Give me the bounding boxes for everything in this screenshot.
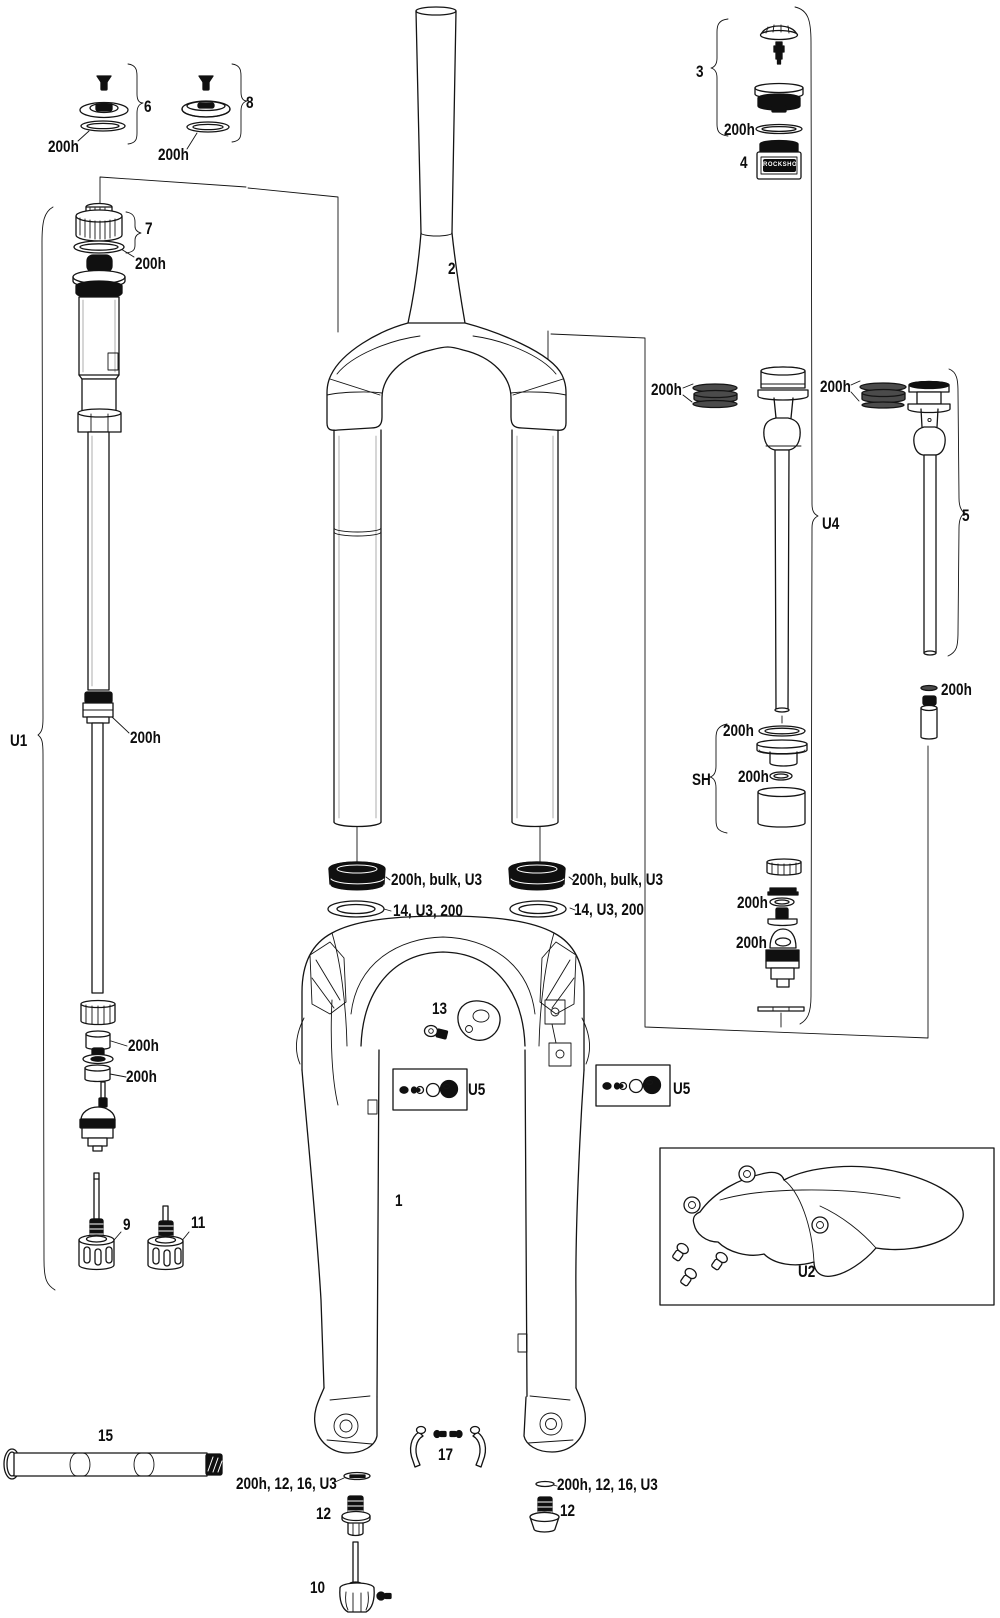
shaft-bolt-seal-label-right: 200h, 12, 16, U3 <box>557 1477 658 1494</box>
dust-seal-right <box>509 862 565 891</box>
part-8-topcap-group <box>182 76 230 132</box>
axle-15 <box>4 1449 222 1479</box>
part-3-air-valve-cap-group <box>755 25 803 134</box>
callout-8: 8 <box>246 95 254 112</box>
diagram-line-art <box>0 0 1000 1618</box>
damper-assembly-u1 <box>73 255 125 1025</box>
callout-u1: U1 <box>10 733 27 750</box>
service-interval-piston-2: 200h <box>736 935 767 952</box>
callout-15: 15 <box>98 1428 113 1445</box>
service-interval-5-seals: 200h <box>820 379 851 396</box>
u5-kit-box-right <box>596 1065 670 1106</box>
callout-u4: U4 <box>822 516 839 533</box>
callout-11: 11 <box>191 1215 205 1232</box>
callout-6: 6 <box>144 99 152 116</box>
service-interval-6: 200h <box>48 139 79 156</box>
callout-5: 5 <box>962 508 970 525</box>
rebound-knob-9 <box>79 1173 114 1270</box>
callout-sh: SH <box>692 772 711 789</box>
callout-4: 4 <box>740 155 748 172</box>
hose-guide-17-right <box>450 1427 485 1468</box>
service-interval-7: 200h <box>135 256 166 273</box>
dust-seal-left <box>329 862 385 891</box>
shaft-bolt-12-left <box>342 1496 370 1536</box>
dust-seal-label-right: 200h, bulk, U3 <box>572 872 663 889</box>
u2-fender-box <box>660 1148 994 1305</box>
lower-legs-part-1 <box>297 916 590 1453</box>
csu-part-2 <box>327 7 566 862</box>
callout-9: 9 <box>123 1217 131 1234</box>
shaft-bolt-12-right <box>530 1497 559 1532</box>
callout-1: 1 <box>395 1193 403 1210</box>
part-5-air-shaft-group <box>860 382 950 656</box>
service-interval-u4-seals: 200h <box>651 382 682 399</box>
service-interval-sealhead-1: 200h <box>128 1038 159 1055</box>
u5-kit-box-left <box>393 1069 467 1110</box>
foam-ring-label-left: 14, U3, 200 <box>393 903 463 920</box>
callout-10: 10 <box>310 1580 325 1597</box>
callout-12-left: 12 <box>316 1506 331 1523</box>
foam-ring-label-right: 14, U3, 200 <box>574 902 644 919</box>
damper-seal-head-group <box>80 1031 115 1151</box>
part-7-adjuster-knob-group <box>74 204 124 254</box>
service-interval-sh-1: 200h <box>723 723 754 740</box>
crush-washer-left <box>344 1473 370 1480</box>
u4-seal-stack <box>693 384 737 408</box>
callout-u5-left: U5 <box>468 1082 485 1099</box>
callout-7: 7 <box>145 221 153 238</box>
service-interval-sealhead-2: 200h <box>126 1069 157 1086</box>
foam-ring-left <box>328 901 384 917</box>
callout-3: 3 <box>696 64 704 81</box>
callout-17: 17 <box>438 1447 453 1464</box>
crush-washer-right <box>536 1482 554 1487</box>
service-interval-8: 200h <box>158 147 189 164</box>
air-shaft-small-parts <box>921 686 937 740</box>
rebound-adjuster-10 <box>340 1542 391 1612</box>
u4-air-shaft <box>758 367 808 723</box>
callout-u5-right: U5 <box>673 1081 690 1098</box>
rebound-knob-11 <box>148 1206 183 1270</box>
callout-2: 2 <box>448 261 456 278</box>
callout-u2: U2 <box>798 1264 815 1281</box>
shaft-bolt-seal-label-left: 200h, 12, 16, U3 <box>236 1476 337 1493</box>
exploded-parts-diagram: 6 200h 8 200h 7 200h 2 3 200h 4 200h 200… <box>0 0 1000 1618</box>
service-interval-shaft-collar: 200h <box>130 730 161 747</box>
part-6-topcap-group <box>80 76 128 131</box>
grease-tub-brand-label: ROCKSHOX <box>763 159 796 172</box>
foam-ring-right <box>510 901 566 917</box>
service-interval-3: 200h <box>724 122 755 139</box>
dust-seal-label-left: 200h, bulk, U3 <box>391 872 482 889</box>
callout-13: 13 <box>432 1001 447 1018</box>
service-interval-sh-2: 200h <box>738 769 769 786</box>
service-interval-air-parts: 200h <box>941 682 972 699</box>
service-interval-piston-1: 200h <box>737 895 768 912</box>
callout-12-right: 12 <box>560 1503 575 1520</box>
